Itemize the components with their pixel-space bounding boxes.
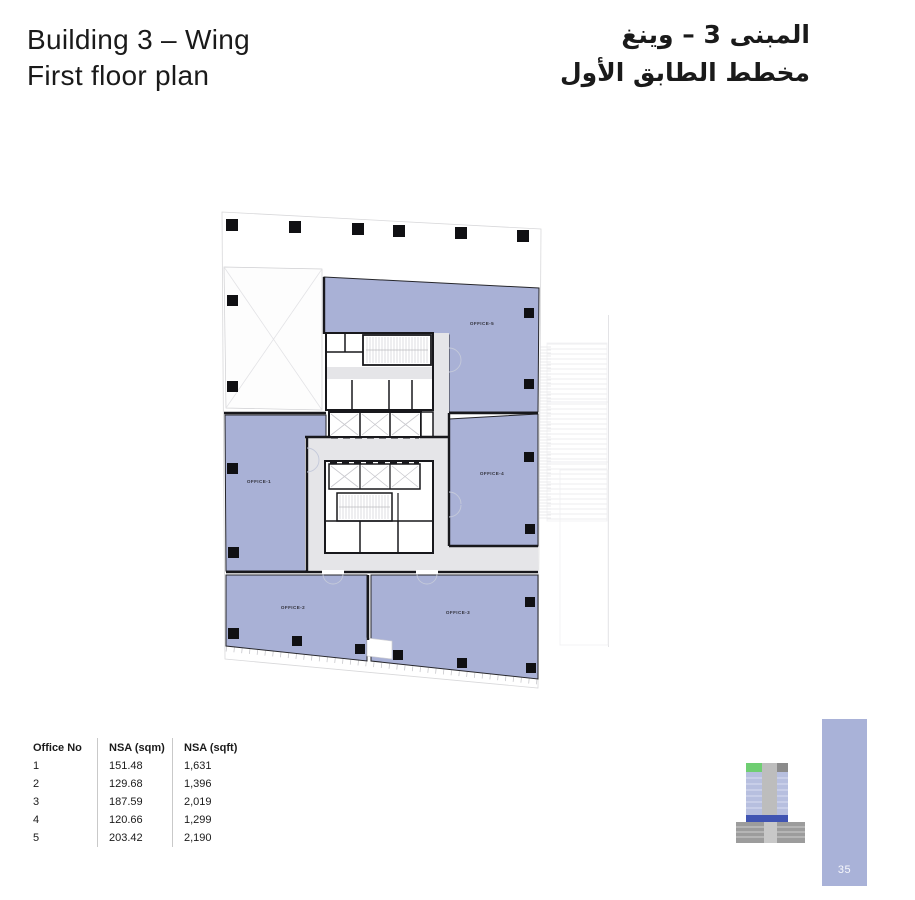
building-core — [762, 763, 777, 822]
page-title-line1: Building 3 – Wing — [27, 22, 250, 58]
building-podium — [736, 822, 805, 843]
area-table: Office No 1 2 3 4 5 NSA (sqm) 151.48 129… — [33, 738, 254, 847]
office-label: OFFICE-4 — [480, 471, 504, 476]
table-cell: 4 — [33, 811, 97, 829]
table-cell: 1,396 — [184, 775, 254, 793]
table-cell: 1 — [33, 757, 97, 775]
page-number: 35 — [822, 864, 867, 876]
table-cell: 129.68 — [109, 775, 172, 793]
table-cell: 120.66 — [109, 811, 172, 829]
page-title-arabic-line2: مخطط الطابق الأول — [560, 54, 810, 92]
column-header: NSA (sqm) — [109, 739, 172, 757]
highlighted-floor — [746, 815, 788, 822]
column-header: Office No — [33, 739, 97, 757]
building-green-cap — [746, 763, 762, 772]
page-title: Building 3 – Wing First floor plan — [27, 22, 250, 94]
table-cell: 2,019 — [184, 793, 254, 811]
table-column-nsa-sqm: NSA (sqm) 151.48 129.68 187.59 120.66 20… — [97, 738, 172, 847]
entrance-notch — [367, 638, 392, 659]
table-cell: 2,190 — [184, 829, 254, 847]
office-label: OFFICE-2 — [281, 605, 305, 610]
building-gray-cap — [777, 763, 788, 772]
table-cell: 203.42 — [109, 829, 172, 847]
office-label: OFFICE-5 — [470, 321, 494, 326]
page-title-arabic-line1: المبنى 3 – وينغ — [560, 16, 810, 54]
office-3-area — [371, 575, 538, 679]
building-tower — [746, 763, 788, 822]
table-cell: 5 — [33, 829, 97, 847]
table-cell: 1,299 — [184, 811, 254, 829]
office-4-area — [449, 414, 538, 546]
page-title-arabic: المبنى 3 – وينغ مخطط الطابق الأول — [560, 16, 810, 92]
building-elevation-icon — [735, 761, 807, 845]
table-column-nsa-sqft: NSA (sqft) 1,631 1,396 2,019 1,299 2,190 — [172, 738, 254, 847]
table-cell: 151.48 — [109, 757, 172, 775]
table-cell: 1,631 — [184, 757, 254, 775]
column-header: NSA (sqft) — [184, 739, 254, 757]
office-label: OFFICE-3 — [446, 610, 470, 615]
office-2-area — [226, 575, 367, 661]
void-area — [224, 267, 322, 410]
ghost-structure — [538, 315, 609, 647]
table-cell: 2 — [33, 775, 97, 793]
table-cell: 187.59 — [109, 793, 172, 811]
table-column-office-no: Office No 1 2 3 4 5 — [33, 738, 97, 847]
table-cell: 3 — [33, 793, 97, 811]
page-number-bar: 35 — [822, 719, 867, 886]
page-title-line2: First floor plan — [27, 58, 250, 94]
floor-plan: OFFICE-1 OFFICE-2 OFFICE-3 OFFICE-4 OFFI… — [210, 195, 620, 705]
office-label: OFFICE-1 — [247, 479, 271, 484]
